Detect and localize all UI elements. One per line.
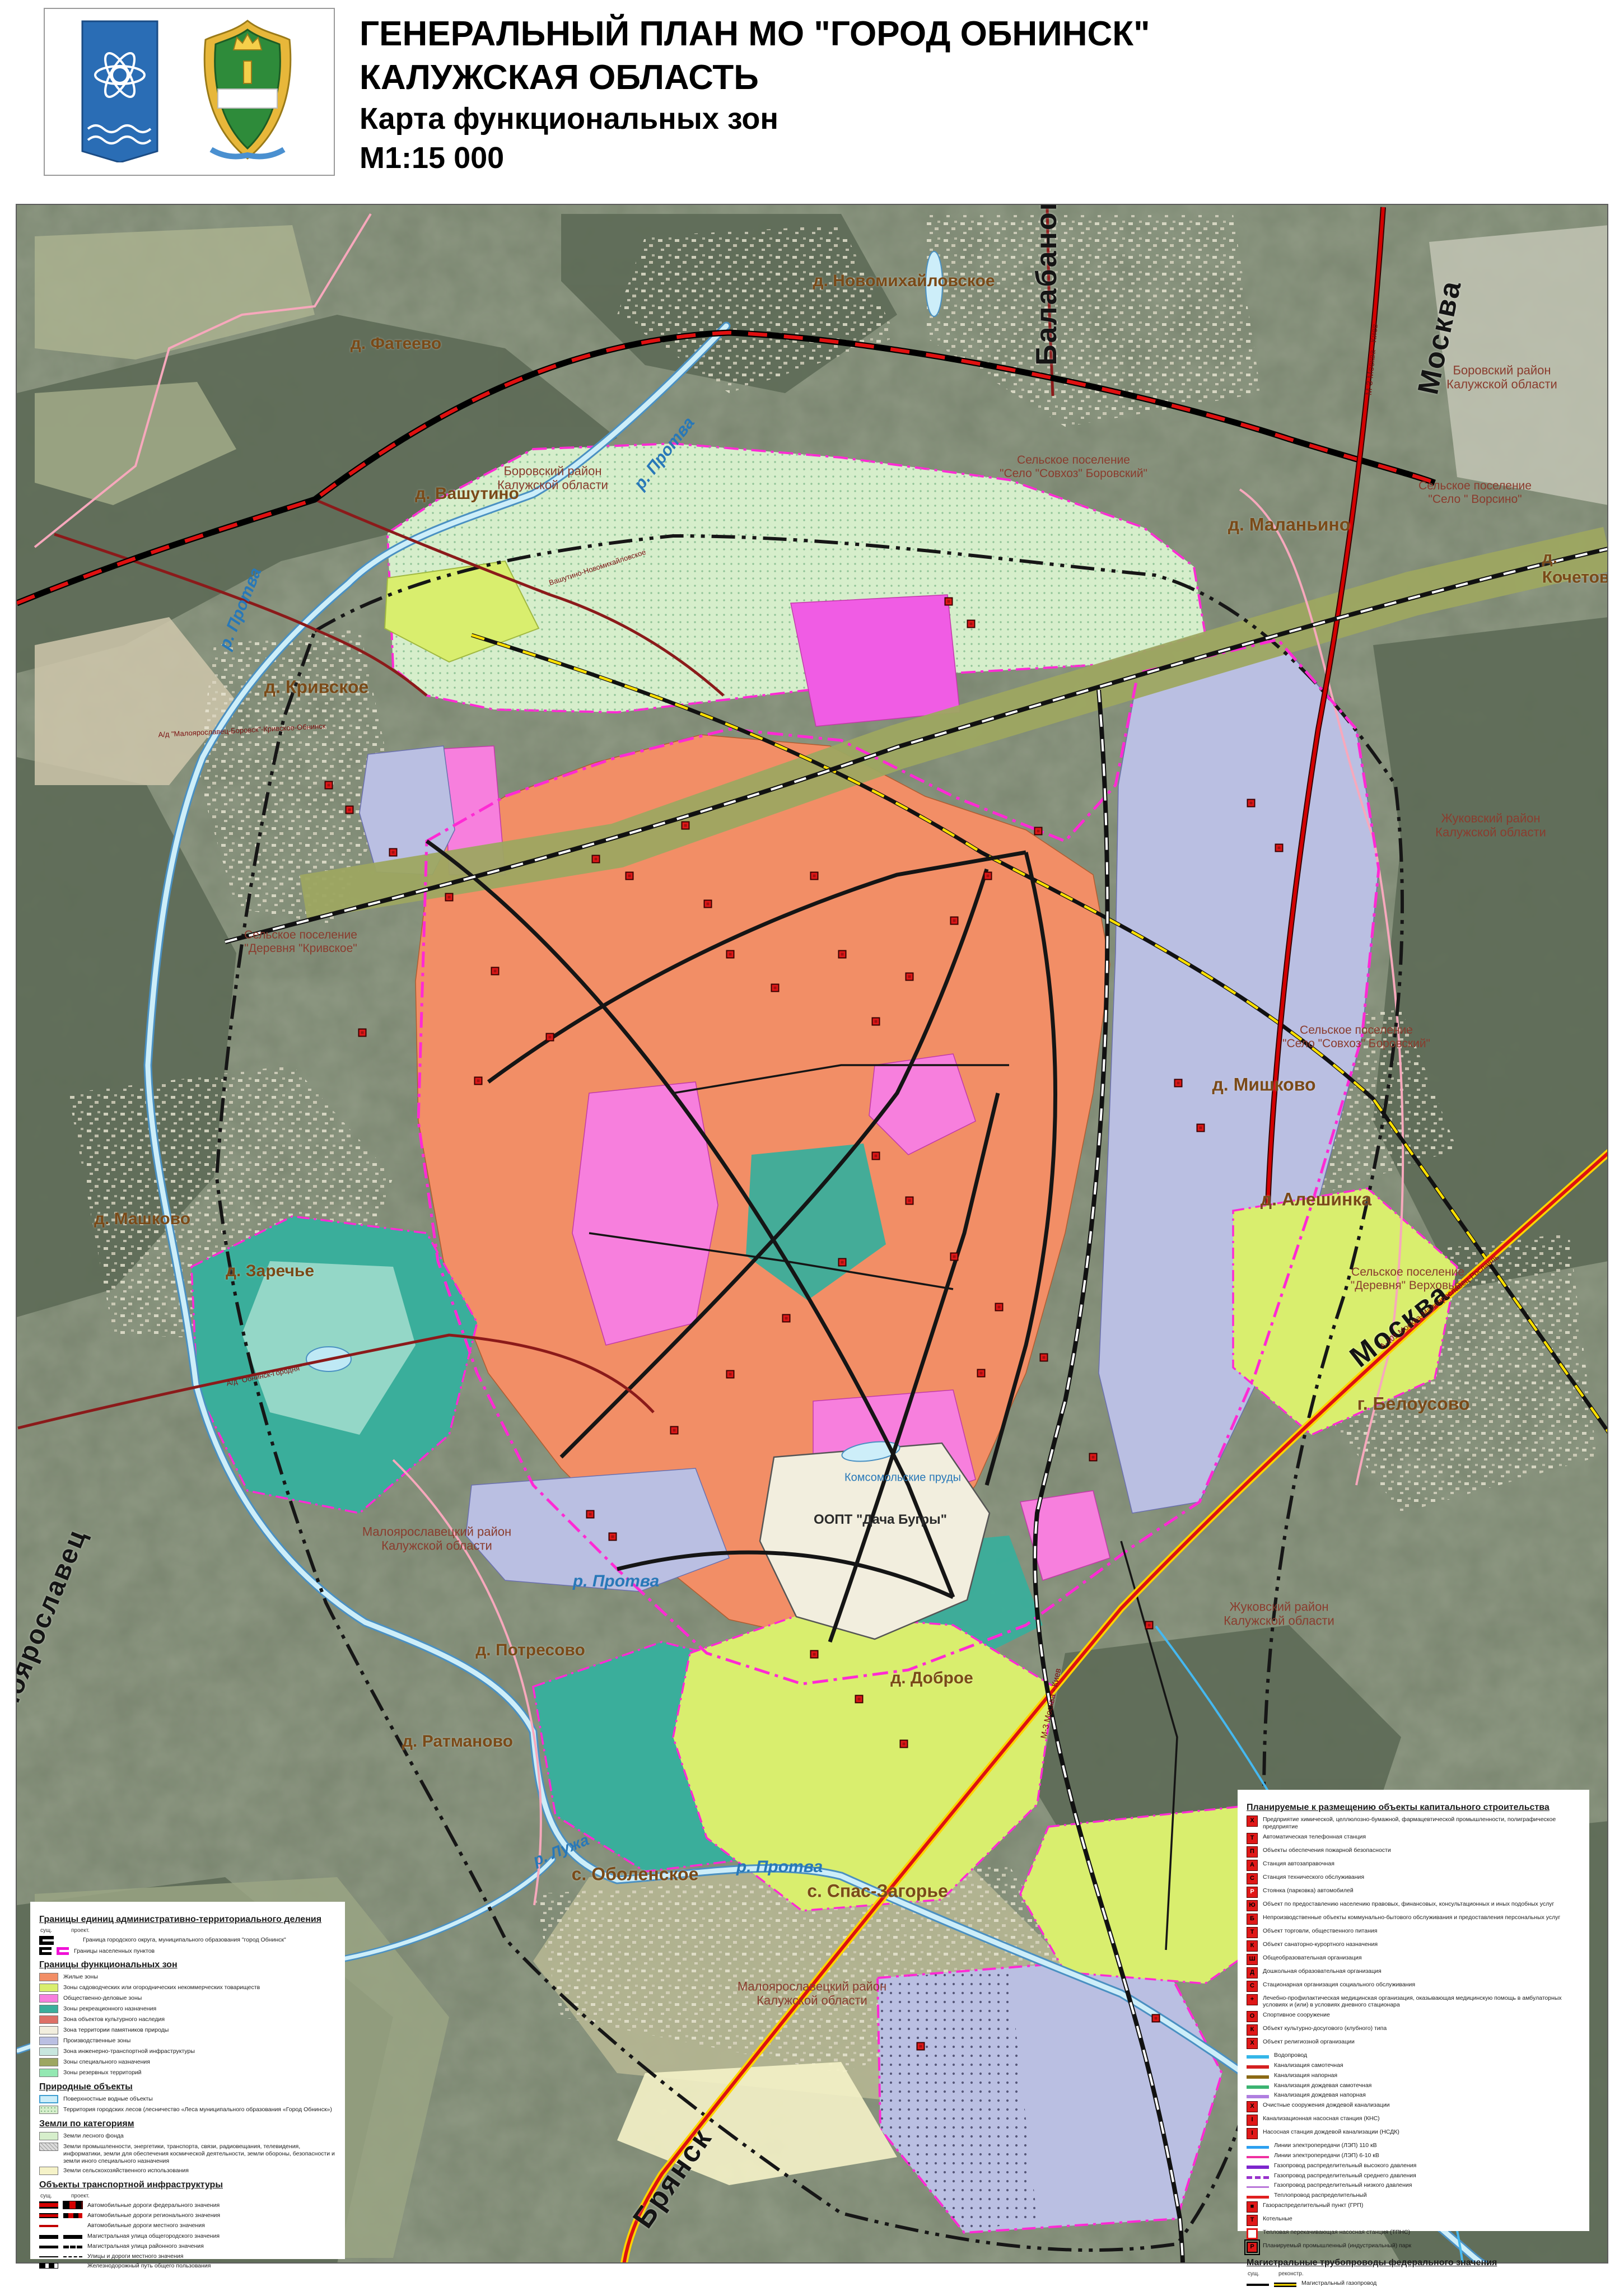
page: ГЕНЕРАЛЬНЫЙ ПЛАН МО "ГОРОД ОБНИНСК" КАЛУ…	[0, 0, 1624, 2296]
legend-row: Д Дошкольная образовательная организация	[1247, 1967, 1580, 1978]
legend-label: Зона инженерно-транспортной инфраструкту…	[63, 2047, 195, 2055]
swatch	[39, 2047, 58, 2056]
legend-symbol	[1247, 2065, 1269, 2069]
legend-label: Стоянка (парковка) автомобилей	[1263, 1887, 1354, 1894]
legend-row: Канализация дождевая напорная	[1247, 2091, 1580, 2099]
legend-row: Т Автоматическая телефонная станция	[1247, 1833, 1580, 1844]
legend-rows: Автомобильные дороги федерального значен…	[39, 2201, 336, 2270]
legend-label: Газопровод распределительный высокого да…	[1274, 2162, 1416, 2169]
legend-label: Канализация дождевая самотечная	[1274, 2082, 1371, 2089]
legend-label: Зоны резервных территорий	[63, 2069, 142, 2076]
swatch	[39, 2263, 58, 2269]
legend-row: Т Объект торговли, общественного питания	[1247, 1927, 1580, 1938]
legend-symbol: К	[1247, 2024, 1258, 2036]
legend-row: Ш Общеобразовательная организация	[1247, 1954, 1580, 1965]
legend-rows: Жилые зоны Зоны садоводческих или огород…	[39, 1973, 336, 2077]
legend-label: Поверхностные водные объекты	[63, 2095, 153, 2103]
legend-row: Автомобильные дороги федерального значен…	[39, 2201, 336, 2209]
legend-left: Границы единиц административно-территори…	[30, 1902, 345, 2259]
legend-label: Автомобильные дороги федерального значен…	[87, 2201, 220, 2209]
col-existing: сущ.	[40, 1928, 52, 1934]
legend-label: Газораспределительный пункт (ГРП)	[1263, 2201, 1363, 2209]
title-line-1: ГЕНЕРАЛЬНЫЙ ПЛАН МО "ГОРОД ОБНИНСК"	[360, 12, 1150, 56]
legend-symbol: X	[1247, 2038, 1258, 2049]
legend-row: Водопровод	[1247, 2051, 1580, 2059]
legend-row: Зоны садоводческих или огороднических не…	[39, 1984, 336, 1992]
legend-label: Магистральная улица районного значения	[87, 2242, 204, 2250]
legend-row: + Лечебно-профилактическая медицинская о…	[1247, 1994, 1580, 2009]
legend-symbol: П	[1247, 1846, 1258, 1858]
legend-symbol: Т	[1247, 1927, 1258, 1938]
legend-columns: сущ. проект.	[40, 1928, 336, 1934]
legend-row: Границы населенных пунктов	[39, 1947, 336, 1955]
legend-symbol: А	[1247, 1860, 1258, 1871]
legend-row: Теплопровод распределительный	[1247, 2191, 1580, 2199]
legend-row: Земли сельскохозяйственного использовани…	[39, 2167, 336, 2175]
legend-label: Газопровод распределительный среднего да…	[1274, 2172, 1416, 2180]
legend-label: Очистные сооружения дождевой канализации	[1263, 2101, 1390, 2109]
obninsk-flag-icon	[78, 19, 162, 165]
swatch	[39, 1984, 58, 1992]
legend-row: Земли лесного фонда	[39, 2132, 336, 2140]
swatch	[39, 1973, 58, 1981]
legend-row: Газопровод распределительный высокого да…	[1247, 2162, 1580, 2169]
legend-rows: Земли лесного фонда Земли промышленности…	[39, 2132, 336, 2175]
swatch	[39, 2026, 58, 2034]
swatch	[39, 2201, 58, 2209]
legend-label: Объект религиозной организации	[1263, 2038, 1355, 2046]
legend-row: Поверхностные водные объекты	[39, 2095, 336, 2103]
legend-label: Канализация напорная	[1274, 2071, 1337, 2079]
legend-row: Магистральная улица районного значения	[39, 2242, 336, 2250]
legend-symbol: Т	[1247, 2215, 1258, 2226]
legend-label: Автоматическая телефонная станция	[1263, 1833, 1366, 1841]
legend-label: Спортивное сооружение	[1263, 2011, 1330, 2019]
legend-row: Тепловая перекачивающая насосная станция…	[1247, 2228, 1580, 2239]
legend-label: Непроизводственные объекты коммунально-б…	[1263, 1914, 1560, 1921]
legend-row: Ю Объект по предоставлению населению пра…	[1247, 1900, 1580, 1911]
legend-label: Улицы и дороги местного значения	[87, 2252, 183, 2260]
legend-symbol	[1247, 2166, 1269, 2169]
legend-symbol: О	[1247, 2011, 1258, 2022]
legend-label: Железнодорожный путь общего пользования	[87, 2262, 211, 2270]
legend-row: ■ Газораспределительный пункт (ГРП)	[1247, 2201, 1580, 2213]
legend-row: К Объект культурно-досугового (клубного)…	[1247, 2024, 1580, 2036]
legend-label: Лечебно-профилактическая медицинская орг…	[1263, 1994, 1580, 2009]
legend-label: Предприятие химической, целлюлозно-бумаж…	[1263, 1816, 1580, 1831]
legend-symbol: +	[1247, 1994, 1258, 2005]
legend-row: Территория городских лесов (лесничество …	[39, 2106, 336, 2114]
title-line-3: Карта функциональных зон	[360, 99, 1150, 138]
swatch	[63, 2256, 82, 2257]
legend-label: Земли промышленности, энергетики, трансп…	[63, 2143, 336, 2164]
legend-symbol: ■	[1247, 2201, 1258, 2213]
legend-row: Земли промышленности, энергетики, трансп…	[39, 2143, 336, 2164]
kaluga-crest-icon	[194, 17, 301, 167]
legend-label: Объект культурно-досугового (клубного) т…	[1263, 2024, 1387, 2032]
legend-symbol: Х	[1247, 1816, 1258, 1827]
legend-label: Зоны садоводческих или огороднических не…	[63, 1984, 260, 1991]
legend-columns: сущ. реконстр.	[1248, 2271, 1580, 2277]
legend-row: Зоны специального назначения	[39, 2058, 336, 2066]
col-planned: проект.	[71, 1928, 90, 1934]
legend-row: X Очистные сооружения дождевой канализац…	[1247, 2101, 1580, 2112]
swatch	[39, 1994, 58, 2003]
col-reconstruction: реконстр.	[1278, 2271, 1304, 2277]
legend-row: Жилые зоны	[39, 1973, 336, 1981]
legend-section-title: Земли по категориям	[39, 2119, 336, 2129]
legend-rows: Поверхностные водные объекты Территория …	[39, 2095, 336, 2114]
legend-row: К Объект санаторно-курортного назначения	[1247, 1940, 1580, 1952]
swatch	[39, 2005, 58, 2013]
legend-label: Жилые зоны	[63, 1973, 98, 1981]
legend-columns: сущ. проект.	[40, 2193, 336, 2199]
legend-label: Земли сельскохозяйственного использовани…	[63, 2167, 189, 2174]
legend-row: Б Непроизводственные объекты коммунально…	[1247, 1914, 1580, 1925]
legend-label: Зоны рекреационного назначения	[63, 2005, 156, 2013]
legend-label: Канализационная насосная станция (КНС)	[1263, 2115, 1380, 2122]
legend-row: Магистральный газопровод	[1247, 2279, 1580, 2287]
legend-row: Зона объектов культурного наследия	[39, 2015, 336, 2024]
header: ГЕНЕРАЛЬНЫЙ ПЛАН МО "ГОРОД ОБНИНСК" КАЛУ…	[0, 0, 1624, 203]
legend-symbol	[1247, 2075, 1269, 2079]
swatch	[39, 2246, 58, 2248]
legend-label: Зоны специального назначения	[63, 2058, 150, 2066]
legend-symbol: X	[1247, 2101, 1258, 2112]
legend-label: Объект санаторно-курортного назначения	[1263, 1940, 1378, 1948]
legend-symbol: Б	[1247, 1914, 1258, 1925]
legend-symbol: К	[1247, 1940, 1258, 1952]
swatch	[57, 1947, 69, 1955]
legend-label: Территория городских лесов (лесничество …	[63, 2106, 332, 2113]
swatch	[39, 2235, 58, 2239]
swatch	[39, 2213, 58, 2218]
legend-label: Станция технического обслуживания	[1263, 1873, 1364, 1881]
legend-row: Х Предприятие химической, целлюлозно-бум…	[1247, 1816, 1580, 1831]
legend-rows: Магистральный газопровод	[1247, 2279, 1580, 2287]
legend-row: Линии электропередачи (ЛЭП) 6-10 кВ	[1247, 2152, 1580, 2159]
col-planned: проект.	[71, 2193, 90, 2199]
swatch	[39, 2167, 58, 2175]
swatch	[39, 2095, 58, 2103]
legend-label: Магистральный газопровод	[1301, 2279, 1376, 2287]
legend-section-title: Границы единиц административно-территори…	[39, 1915, 336, 1925]
legend-row: Т Котельные	[1247, 2215, 1580, 2226]
legend-label: Станция автозаправочная	[1263, 1860, 1334, 1868]
legend-label: Границы населенных пунктов	[74, 1947, 155, 1955]
legend-symbol	[1247, 2228, 1258, 2239]
legend-row: Улицы и дороги местного значения	[39, 2252, 336, 2260]
legend-row: Граница городского округа, муниципальног…	[39, 1936, 336, 1945]
legend-row: Производственные зоны	[39, 2037, 336, 2045]
title-line-4: М1:15 000	[360, 138, 1150, 178]
swatch	[39, 2106, 58, 2114]
legend-symbol	[1247, 2156, 1269, 2158]
legend-row: I Насосная станция дождевой канализации …	[1247, 2128, 1580, 2139]
legend-row: X Объект религиозной организации	[1247, 2038, 1580, 2049]
legend-row: Канализация самотечная	[1247, 2061, 1580, 2069]
swatch	[39, 1936, 54, 1945]
swatch	[39, 1947, 52, 1955]
col-existing: сущ.	[1248, 2271, 1259, 2277]
legend-label: Дошкольная образовательная организация	[1263, 1967, 1382, 1975]
legend-label: Тепловая перекачивающая насосная станция…	[1263, 2228, 1410, 2236]
swatch	[63, 2235, 82, 2239]
swatch	[63, 2201, 82, 2209]
legend-symbol	[1247, 2186, 1269, 2188]
swatch	[63, 2213, 82, 2218]
legend-label: Планируемый промышленный (индустриальный…	[1263, 2242, 1411, 2250]
legend-row: Общественно-деловые зоны	[39, 1994, 336, 2003]
legend-row: Канализация напорная	[1247, 2071, 1580, 2079]
legend-label: Линии электропередачи (ЛЭП) 110 кВ	[1274, 2141, 1377, 2149]
legend-symbol	[1247, 2146, 1269, 2149]
legend-label: Насосная станция дождевой канализации (Н…	[1263, 2128, 1399, 2136]
legend-symbol: I	[1247, 2128, 1258, 2139]
legend-symbol: Ю	[1247, 1900, 1258, 1911]
legend-row: Железнодорожный путь общего пользования	[39, 2262, 336, 2270]
swatch	[39, 2015, 58, 2024]
legend-row: Автомобильные дороги местного значения	[39, 2222, 336, 2230]
swatch	[39, 2058, 58, 2066]
legend-label: Котельные	[1263, 2215, 1292, 2223]
legend-symbol	[1247, 2055, 1269, 2059]
legend-label: Земли лесного фонда	[63, 2132, 124, 2140]
legend-row: Зона территории памятников природы	[39, 2026, 336, 2034]
legend-symbol: P	[1247, 1887, 1258, 1898]
legend-row: Газопровод распределительный среднего да…	[1247, 2172, 1580, 2180]
legend-label: Автомобильные дороги местного значения	[87, 2222, 205, 2229]
legend-row: О Спортивное сооружение	[1247, 2011, 1580, 2022]
legend-label: Водопровод	[1274, 2051, 1307, 2059]
legend-symbol	[1247, 2176, 1269, 2179]
legend-label: Газопровод распределительный низкого дав…	[1274, 2181, 1412, 2189]
legend-symbol	[1247, 2284, 1269, 2286]
swatch	[39, 2132, 58, 2140]
emblems-box	[44, 8, 335, 176]
legend-symbol	[1247, 2196, 1269, 2199]
swatch	[39, 2143, 58, 2151]
legend-label: Объект торговли, общественного питания	[1263, 1927, 1377, 1935]
swatch	[39, 2037, 58, 2045]
legend-right: Планируемые к размещению объекты капитал…	[1238, 1790, 1589, 2231]
col-existing: сущ.	[40, 2193, 52, 2199]
legend-row: А Станция автозаправочная	[1247, 1860, 1580, 1871]
legend-label: Производственные зоны	[63, 2037, 130, 2045]
legend-label: Объекты обеспечения пожарной безопасност…	[1263, 1846, 1391, 1854]
legend-label: Теплопровод распределительный	[1274, 2191, 1367, 2199]
legend-rows: Х Предприятие химической, целлюлозно-бум…	[1247, 1816, 1580, 2253]
legend-row: Линии электропередачи (ЛЭП) 110 кВ	[1247, 2141, 1580, 2149]
legend-symbol	[1247, 2095, 1269, 2098]
legend-section-title: Планируемые к размещению объекты капитал…	[1247, 1803, 1580, 1813]
legend-label: Общественно-деловые зоны	[63, 1994, 142, 2002]
legend-label: Общеобразовательная организация	[1263, 1954, 1362, 1962]
swatch	[39, 2069, 58, 2077]
legend-row: Зона инженерно-транспортной инфраструкту…	[39, 2047, 336, 2056]
legend-row: P Стоянка (парковка) автомобилей	[1247, 1887, 1580, 1898]
legend-label: Канализация самотечная	[1274, 2061, 1343, 2069]
legend-row: П Объекты обеспечения пожарной безопасно…	[1247, 1846, 1580, 1858]
page-title: ГЕНЕРАЛЬНЫЙ ПЛАН МО "ГОРОД ОБНИНСК" КАЛУ…	[360, 12, 1150, 178]
legend-label: Магистральная улица общегородского значе…	[87, 2232, 220, 2240]
legend-symbol: Т	[1247, 1833, 1258, 1844]
legend-rows: Граница городского округа, муниципальног…	[39, 1936, 336, 1955]
legend-symbol: Ш	[1247, 1954, 1258, 1965]
legend-row: Зоны резервных территорий	[39, 2069, 336, 2077]
swatch	[63, 2246, 82, 2248]
legend-row: Зоны рекреационного назначения	[39, 2005, 336, 2013]
legend-row: P Планируемый промышленный (индустриальн…	[1247, 2242, 1580, 2253]
legend-row: I Канализационная насосная станция (КНС)	[1247, 2115, 1580, 2126]
legend-label: Зона объектов культурного наследия	[63, 2015, 165, 2023]
legend-label: Граница городского округа, муниципальног…	[83, 1936, 286, 1944]
title-line-2: КАЛУЖСКАЯ ОБЛАСТЬ	[360, 56, 1150, 100]
legend-symbol: P	[1247, 2242, 1258, 2253]
legend-section-title: Объекты транспортной инфраструктуры	[39, 2180, 336, 2190]
legend-row: С Станция технического обслуживания	[1247, 1873, 1580, 1884]
swatch	[39, 2256, 58, 2257]
swatch	[39, 2225, 58, 2227]
legend-row: Газопровод распределительный низкого дав…	[1247, 2181, 1580, 2189]
legend-symbol: С	[1247, 1873, 1258, 1884]
legend-symbol	[1274, 2283, 1296, 2287]
legend-symbol: Д	[1247, 1967, 1258, 1978]
legend-row: С Стационарная организация социального о…	[1247, 1981, 1580, 1992]
legend-label: Зона территории памятников природы	[63, 2026, 169, 2034]
legend-section-title: Границы функциональных зон	[39, 1960, 336, 1970]
legend-label: Канализация дождевая напорная	[1274, 2091, 1366, 2099]
legend-section-title: Магистральные трубопроводы федерального …	[1247, 2258, 1580, 2268]
legend-label: Автомобильные дороги регионального значе…	[87, 2211, 220, 2219]
legend-symbol: С	[1247, 1981, 1258, 1992]
legend-row: Канализация дождевая самотечная	[1247, 2082, 1580, 2089]
legend-label: Линии электропередачи (ЛЭП) 6-10 кВ	[1274, 2152, 1379, 2159]
legend-section-title: Природные объекты	[39, 2082, 336, 2092]
legend-symbol	[1247, 2085, 1269, 2089]
legend-label: Объект по предоставлению населению право…	[1263, 1900, 1554, 1908]
legend-row: Магистральная улица общегородского значе…	[39, 2232, 336, 2240]
legend-row: Автомобильные дороги регионального значе…	[39, 2211, 336, 2219]
legend-label: Стационарная организация социального обс…	[1263, 1981, 1415, 1989]
legend-symbol: I	[1247, 2115, 1258, 2126]
